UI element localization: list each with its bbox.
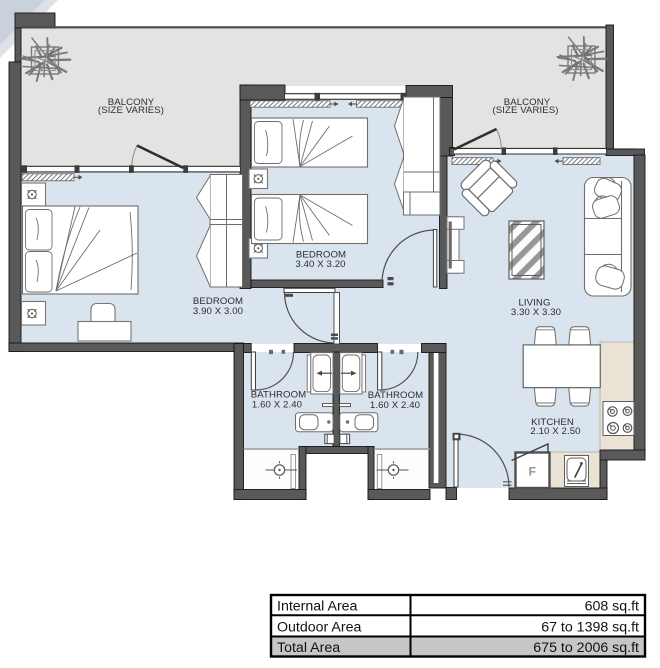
svg-text:(SIZE VARIES): (SIZE VARIES): [492, 105, 558, 116]
svg-text:1.60 X 2.40: 1.60 X 2.40: [252, 400, 302, 411]
svg-text:67 to 1398 sq.ft: 67 to 1398 sq.ft: [541, 619, 639, 635]
svg-text:3.40 X 3.20: 3.40 X 3.20: [295, 259, 345, 270]
svg-text:608 sq.ft: 608 sq.ft: [585, 599, 639, 615]
svg-text:(SIZE VARIES): (SIZE VARIES): [98, 105, 164, 116]
svg-text:675 to 2006 sq.ft: 675 to 2006 sq.ft: [533, 640, 639, 656]
svg-text:Outdoor Area: Outdoor Area: [277, 619, 361, 635]
svg-text:2.10 X 2.50: 2.10 X 2.50: [530, 426, 580, 437]
svg-text:3.30 X 3.30: 3.30 X 3.30: [511, 307, 561, 318]
svg-text:Total Area: Total Area: [277, 640, 340, 656]
svg-text:1.60 X 2.40: 1.60 X 2.40: [370, 400, 420, 411]
svg-text:3.90 X 3.00: 3.90 X 3.00: [193, 306, 243, 317]
svg-text:Internal Area: Internal Area: [277, 599, 358, 615]
svg-text:F: F: [528, 465, 536, 479]
